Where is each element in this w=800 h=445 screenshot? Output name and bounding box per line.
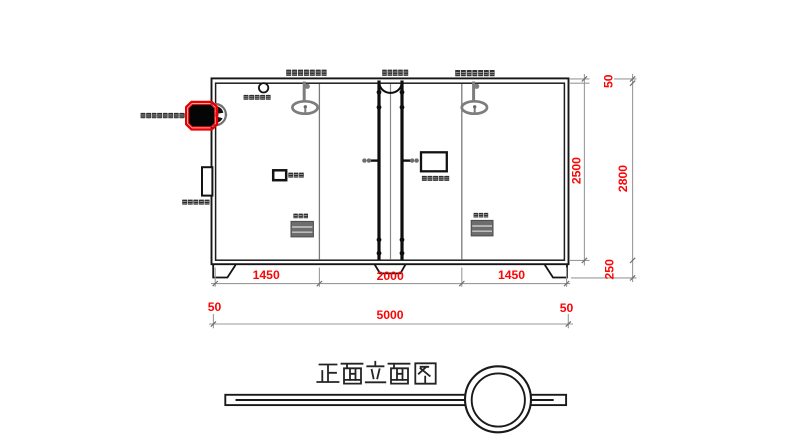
svg-text:50: 50 (208, 300, 222, 314)
svg-text:1450: 1450 (253, 268, 280, 282)
svg-text:1450: 1450 (498, 268, 525, 282)
svg-text:50: 50 (602, 74, 616, 88)
svg-text:50: 50 (560, 301, 574, 315)
svg-text:2000: 2000 (377, 269, 404, 283)
svg-text:2800: 2800 (616, 165, 630, 192)
svg-text:250: 250 (603, 259, 617, 280)
svg-text:2500: 2500 (570, 157, 584, 184)
svg-text:5000: 5000 (376, 308, 403, 322)
